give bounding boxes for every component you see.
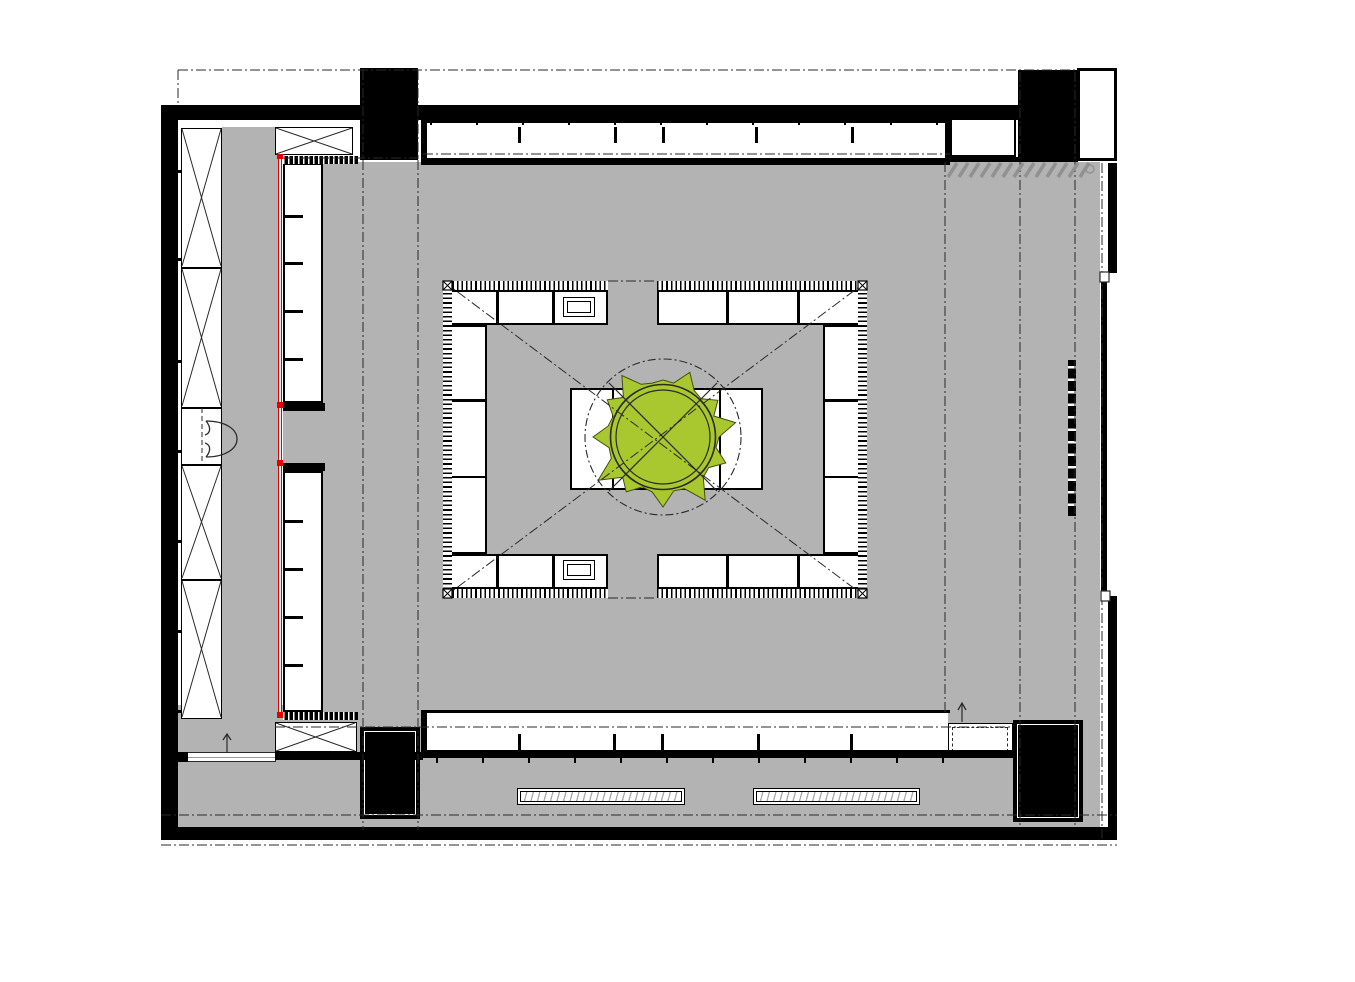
door-pocket-dashed bbox=[952, 727, 1008, 752]
shelf-tick bbox=[283, 310, 303, 313]
display-case-lower bbox=[283, 471, 323, 712]
entry-threshold bbox=[187, 752, 276, 762]
floor-mat-right bbox=[753, 788, 920, 805]
case-cap-bottom bbox=[283, 712, 358, 720]
vitrine-edge-top-left bbox=[443, 281, 608, 290]
case-cap-top bbox=[283, 156, 358, 164]
top-band-lower-line bbox=[421, 158, 950, 165]
shelf-bay-4 bbox=[181, 580, 222, 719]
column-bottom-right bbox=[1013, 720, 1083, 822]
bench-right bbox=[823, 325, 860, 554]
bench-divider bbox=[552, 290, 555, 325]
bench-bottom-right bbox=[657, 554, 860, 589]
mullion bbox=[614, 127, 617, 143]
vitrine-edge-right bbox=[858, 290, 867, 589]
shelf-bay-3 bbox=[181, 465, 222, 580]
radiator-right bbox=[1068, 360, 1076, 516]
column-bottom-left bbox=[360, 727, 420, 819]
shelf-bay-1 bbox=[181, 128, 222, 268]
wall-tick bbox=[176, 450, 182, 453]
column-cap-top-right bbox=[1077, 68, 1117, 161]
glass-wall-upper bbox=[1108, 163, 1117, 273]
vitrine-edge-top-right bbox=[657, 281, 867, 290]
red-marker bbox=[277, 154, 283, 159]
bottom-band-upper-line bbox=[421, 710, 950, 713]
wall-left bbox=[161, 105, 178, 838]
mullion bbox=[613, 734, 616, 750]
case-divider-lower bbox=[283, 463, 325, 471]
planter-divider bbox=[612, 390, 614, 488]
case-divider-upper bbox=[283, 403, 325, 411]
wall-tick bbox=[176, 360, 182, 363]
bench-divider bbox=[797, 290, 800, 325]
mullion bbox=[851, 127, 854, 143]
vitrine-edge-bottom-right bbox=[657, 589, 867, 598]
band-cap-bottom-left bbox=[421, 710, 427, 758]
display-box-inner bbox=[567, 564, 591, 576]
shelf-bay-2 bbox=[181, 268, 222, 408]
red-marker bbox=[277, 712, 283, 718]
mullion bbox=[518, 734, 521, 750]
wall-tick bbox=[176, 710, 182, 713]
wall-stub-entry bbox=[176, 752, 188, 762]
floor-vestibule bbox=[178, 705, 283, 827]
floor-mat-left bbox=[517, 788, 685, 805]
threshold-line bbox=[188, 757, 275, 758]
mullion bbox=[662, 127, 665, 143]
glass-wall-lower bbox=[1108, 596, 1117, 838]
red-marker bbox=[277, 460, 283, 466]
recess-bottom-edge bbox=[948, 157, 1078, 162]
mullion bbox=[518, 127, 521, 143]
vitrine-edge-bottom-left bbox=[443, 589, 608, 598]
display-box-inner bbox=[567, 301, 591, 313]
door-bay bbox=[181, 408, 222, 465]
shelf-tick bbox=[283, 568, 303, 571]
column-top-left bbox=[360, 68, 418, 160]
shelf-tick bbox=[283, 358, 303, 361]
bench-divider bbox=[450, 476, 487, 478]
shelf-tick bbox=[283, 215, 303, 218]
bench-left bbox=[450, 325, 487, 554]
mat-hatch bbox=[520, 791, 682, 802]
wall-tick bbox=[176, 258, 182, 261]
glass-wall-middle bbox=[1101, 282, 1107, 593]
shelf-tick bbox=[283, 664, 303, 667]
bench-divider bbox=[726, 554, 729, 589]
bench-divider bbox=[450, 399, 487, 402]
bench-divider bbox=[496, 554, 499, 589]
mullion bbox=[755, 127, 758, 143]
mullion bbox=[757, 734, 760, 750]
shelf-tick bbox=[283, 520, 303, 523]
display-case-upper bbox=[283, 163, 323, 403]
top-right-recess bbox=[950, 118, 1016, 157]
glass-wall-connector bbox=[1100, 272, 1109, 282]
mullion bbox=[661, 734, 664, 750]
bottom-line-entry bbox=[275, 752, 423, 760]
mullion bbox=[850, 734, 853, 750]
wall-tick bbox=[176, 630, 182, 633]
bench-divider bbox=[797, 554, 800, 589]
bench-divider bbox=[823, 399, 860, 402]
planter-divider bbox=[719, 390, 721, 488]
duct-box-top bbox=[275, 127, 353, 155]
bench-divider bbox=[726, 290, 729, 325]
band-cap-top-left bbox=[421, 120, 427, 165]
wall-tick-strip-top bbox=[430, 117, 947, 125]
duct-box-bottom bbox=[275, 722, 357, 752]
bench-divider bbox=[823, 476, 860, 478]
fire-glass-line bbox=[278, 157, 282, 717]
shelf-tick bbox=[283, 616, 303, 619]
mat-hatch bbox=[756, 791, 917, 802]
wall-tick bbox=[176, 170, 182, 173]
wall-tick-strip-bottom bbox=[436, 753, 946, 763]
floor-plan bbox=[0, 0, 1355, 982]
bench-divider bbox=[496, 290, 499, 325]
planter bbox=[570, 388, 763, 490]
bench-top-right bbox=[657, 290, 860, 325]
wall-bottom bbox=[161, 827, 1117, 840]
red-marker bbox=[277, 402, 283, 408]
floor-corridor-left bbox=[222, 127, 282, 760]
vitrine-edge-left bbox=[443, 290, 452, 589]
shelf-tick bbox=[283, 262, 303, 265]
column-inner-line bbox=[1017, 724, 1079, 818]
bench-divider bbox=[552, 554, 555, 589]
display-box-top bbox=[563, 297, 595, 317]
wall-tick bbox=[176, 540, 182, 543]
display-box-bottom bbox=[563, 560, 595, 580]
column-top-right bbox=[1018, 70, 1077, 160]
column-inner-line bbox=[364, 731, 416, 815]
